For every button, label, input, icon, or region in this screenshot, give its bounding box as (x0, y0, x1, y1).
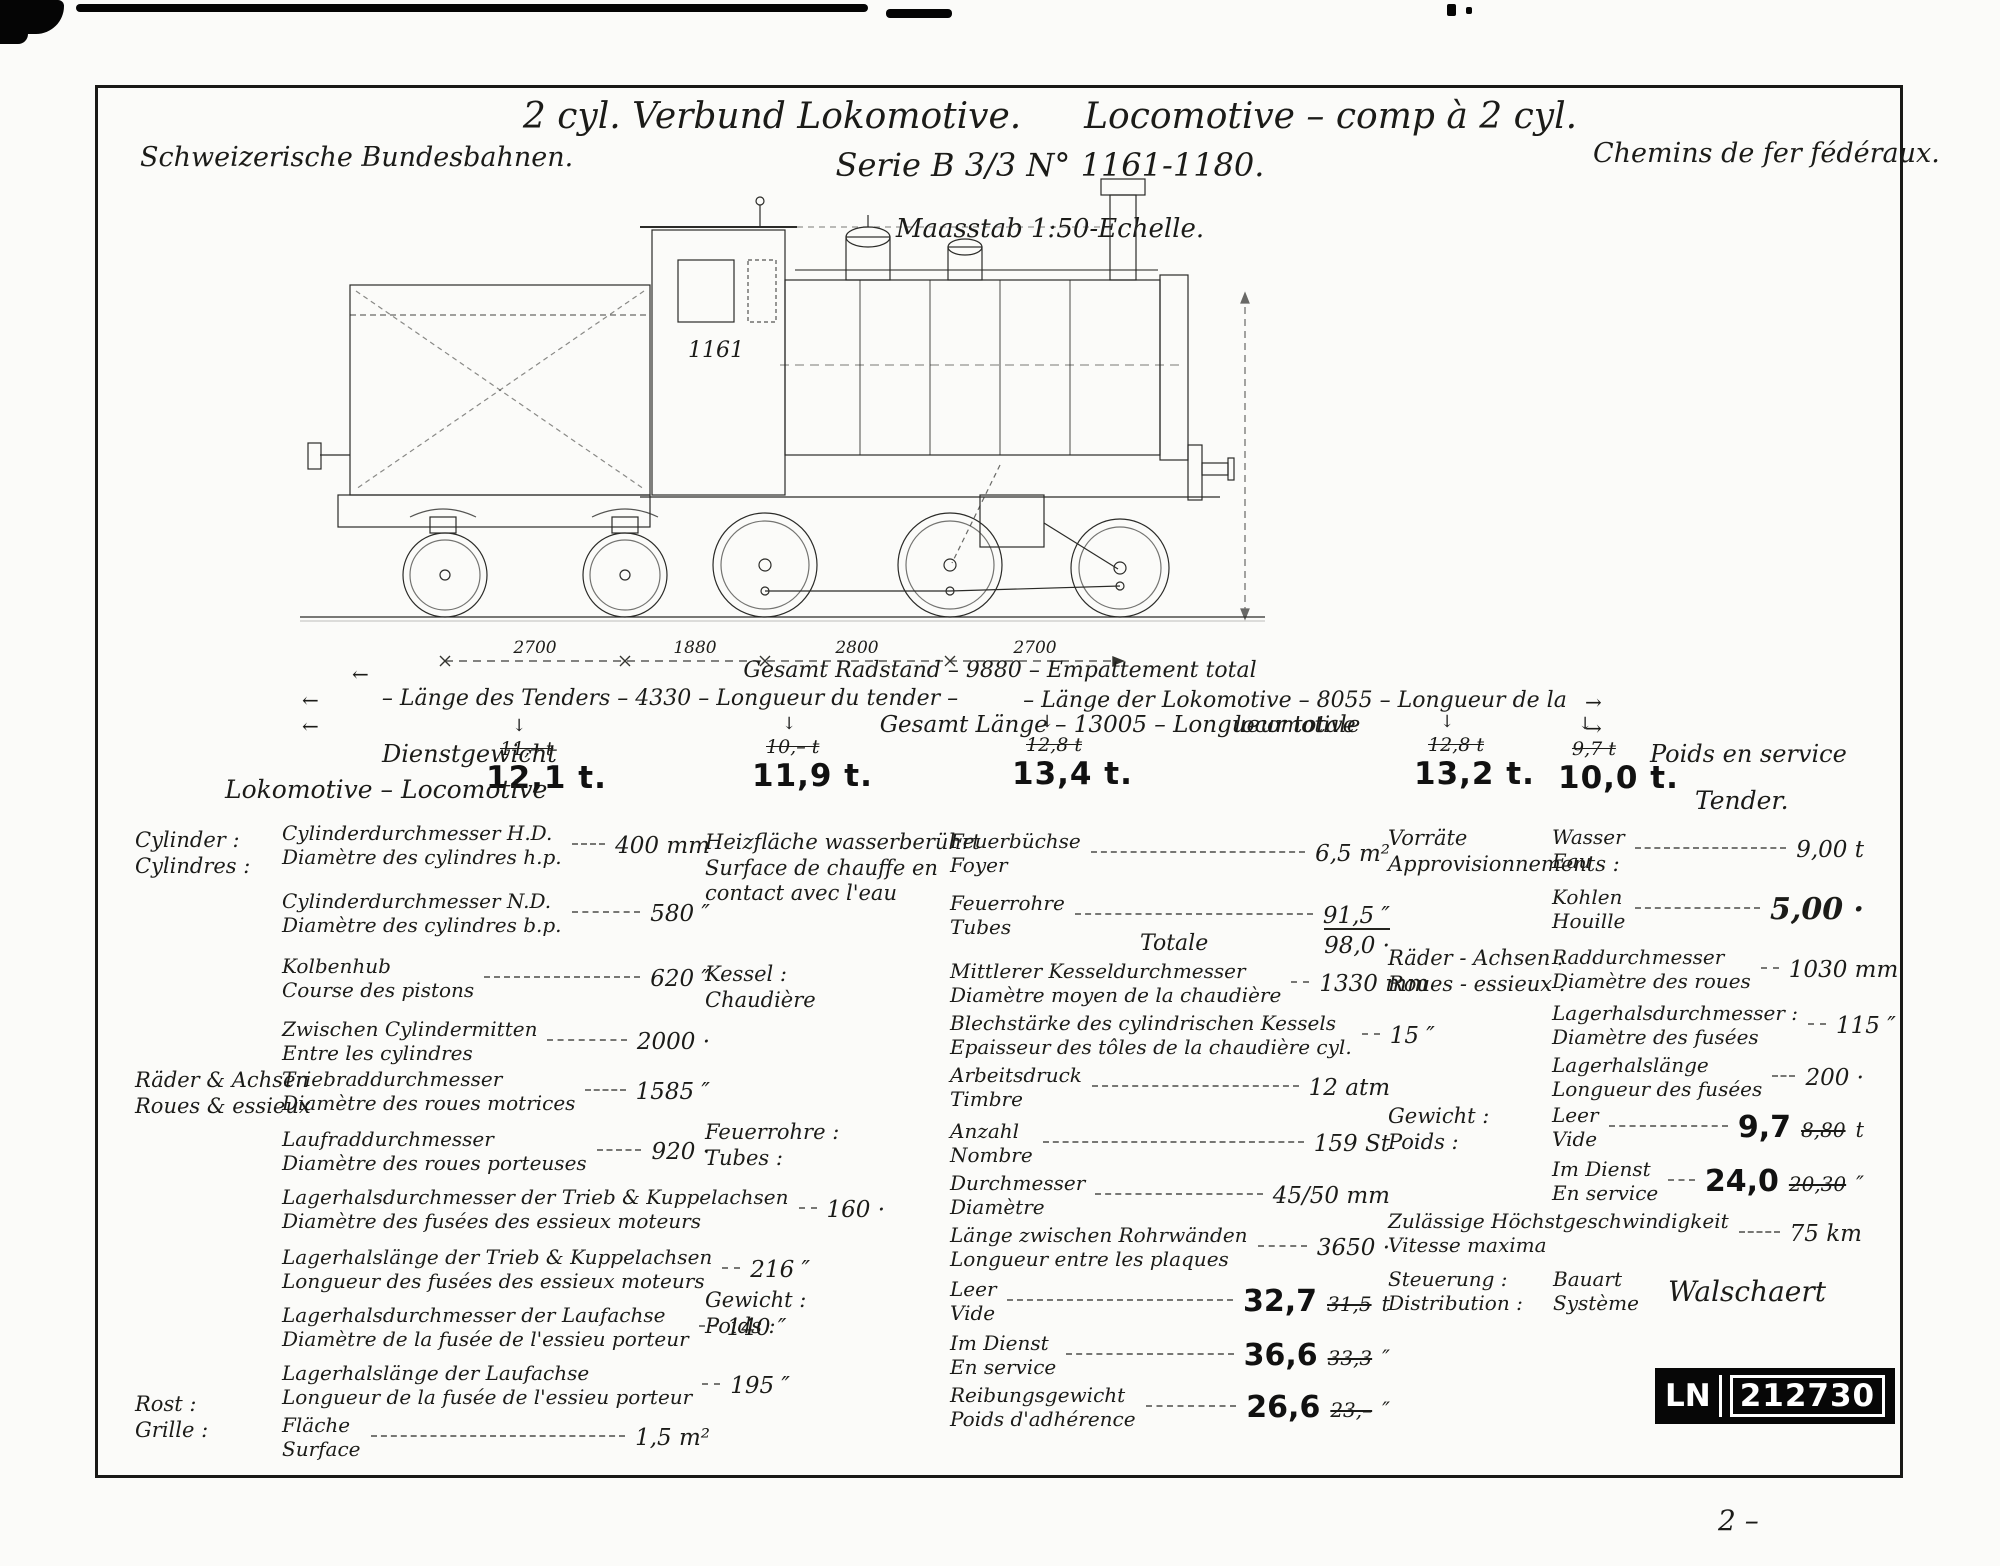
dash-leader (1258, 1243, 1307, 1247)
spec-value: 580 ″ (650, 901, 710, 927)
spec-value: 12 atm (1309, 1075, 1390, 1101)
spec-value: 195 ″ (730, 1373, 790, 1399)
old-value: 33,3 (1328, 1346, 1373, 1370)
spec-value: 5,00 · (1770, 892, 1864, 927)
total-wheelbase-dimension: Gesamt Radstand – 9880 – Empattement tot… (620, 658, 1380, 683)
spec-row-tender-wheel-dia: RaddurchmesserDiamètre des roues 1030 mm (1552, 946, 1864, 993)
dash-leader (1739, 1229, 1780, 1233)
total-label: Totale (1140, 931, 1208, 957)
scan-artifact (76, 4, 868, 12)
spec-value: 3650 · (1317, 1235, 1390, 1261)
axle-load-2: 10,– t 11,9 t. (752, 736, 873, 794)
dash-leader (1609, 1123, 1728, 1127)
spec-row-coal: KohlenHouille 5,00 · (1552, 886, 1864, 933)
spec-row-piston-stroke: KolbenhubCourse des pistons 620 ″ (282, 955, 710, 1002)
dim-arrow-left: ← (352, 662, 369, 686)
value-unit: t (1856, 1118, 1864, 1142)
spec-row-max-speed: Zulässige HöchstgeschwindigkeitVitesse m… (1388, 1210, 1862, 1257)
axle-load-arrow: ↓ (782, 714, 796, 734)
dash-leader (1091, 849, 1305, 853)
valve-gear-type: Walschaert (1668, 1275, 1826, 1308)
dim-arrow-left: ← (302, 714, 319, 738)
spec-value: 91,5 ″ (1323, 903, 1390, 929)
boiler (780, 227, 1188, 460)
group-label-heating-surface: Heizfläche wasserberührt Surface de chau… (705, 830, 980, 907)
value-unit: ″ (1382, 1346, 1390, 1370)
page-number: 2 – (1718, 1504, 1759, 1537)
axle-load-3: 12,8 t 13,4 t. (1012, 734, 1133, 792)
spec-row-tender-journal-length: LagerhalslängeLongueur des fusées 200 · (1552, 1054, 1864, 1101)
span-dim: 2700 (1012, 640, 1056, 658)
dash-leader (484, 974, 640, 978)
spec-value: 45/50 mm (1273, 1183, 1390, 1209)
spec-value: 6,5 m² (1315, 841, 1390, 867)
spec-row-boiler-diameter: Mittlerer KesseldurchmesserDiamètre moye… (950, 960, 1390, 1007)
span-dim: 2700 (512, 640, 556, 658)
dash-leader (585, 1087, 625, 1091)
dash-leader (1772, 1073, 1795, 1077)
old-axle-load: 10,– t (766, 736, 873, 758)
spec-row-tube-length: Länge zwischen RohrwändenLongueur entre … (950, 1224, 1390, 1271)
front-buffer (1188, 445, 1234, 500)
spec-value: 620 ″ (650, 966, 710, 992)
span-dim: 1880 (673, 640, 716, 658)
service-weight-label-french: Poids en service (1650, 740, 1847, 768)
dash-leader (1095, 1191, 1262, 1195)
dash-leader (799, 1205, 817, 1209)
tender-row-label: Tender. (1695, 786, 1789, 815)
spec-row-cylinder-centres: Zwischen CylindermittenEntre les cylindr… (282, 1018, 710, 1065)
scan-artifact (1447, 4, 1456, 16)
axle-load-arrow: ↓ (1440, 712, 1454, 732)
axle-load-4: 12,8 t 13,2 t. (1414, 734, 1535, 792)
corrected-value: 24,0 (1705, 1164, 1779, 1199)
spec-row-valve-gear: Steuerung :Distribution : BauartSystème … (1388, 1268, 1888, 1315)
title: 2 cyl. Verbund Lokomotive. Locomotive – … (500, 96, 1600, 137)
stamp-number: 212730 (1740, 1378, 1875, 1414)
scan-artifact (0, 28, 28, 44)
dash-leader (572, 841, 606, 845)
value-unit: ″ (1382, 1398, 1390, 1422)
corrected-value: 36,6 (1244, 1338, 1318, 1373)
spec-row-total-surface: Totale 98,0 · (1140, 928, 1390, 959)
spec-value: 1030 mm (1789, 957, 1898, 983)
spec-row-tender-journal-dia: Lagerhalsdurchmesser :Diamètre des fusée… (1552, 1002, 1864, 1049)
stamp-prefix: LN (1665, 1378, 1711, 1414)
span-dim: 2800 (834, 640, 878, 658)
dash-leader (1761, 965, 1779, 969)
spec-row-loco-weight-service: Im DienstEn service 36,6 33,3 ″ (950, 1332, 1390, 1379)
group-label-cylinders: Cylinder : Cylindres : (135, 828, 250, 879)
spec-value: 9,00 t (1796, 837, 1864, 863)
spec-row-journal-length-coupled: Lagerhalslänge der Trieb & KuppelachsenL… (282, 1246, 710, 1293)
spec-row-tube-count: AnzahlNombre 159 St (950, 1120, 1390, 1167)
dash-leader (1291, 979, 1309, 983)
spec-value: 400 mm (615, 833, 710, 859)
group-label-fire-tubes: Feuerrohre : Tubes : (705, 1120, 839, 1171)
railway-name-french: Chemins de fer fédéraux. (1593, 138, 1940, 169)
spec-row-journal-length-carrying: Lagerhalslänge der LaufachseLongueur de … (282, 1362, 710, 1409)
rail-line (300, 617, 1265, 621)
spec-value: 15 ″ (1390, 1023, 1435, 1049)
spec-value: 160 · (827, 1197, 886, 1223)
axle-load-arrow: ↓ (1578, 714, 1592, 734)
group-label-tender-weight: Gewicht : Poids : (1388, 1104, 1489, 1155)
corrected-value: 9,7 (1738, 1110, 1791, 1145)
dash-leader (702, 1381, 720, 1385)
group-label-weight: Gewicht : Poids : (705, 1288, 806, 1339)
dash-leader (1043, 1139, 1304, 1143)
spec-row-tube-diameter: DurchmesserDiamètre 45/50 mm (950, 1172, 1390, 1219)
locomotive-drawing: 1161 (280, 165, 1280, 635)
spec-row-journal-dia-carrying: Lagerhalsdurchmesser der LaufachseDiamèt… (282, 1304, 710, 1351)
group-label-boiler: Kessel : Chaudière (705, 962, 816, 1013)
spec-value: 200 · (1805, 1065, 1864, 1091)
title-german: 2 cyl. Verbund Lokomotive. (523, 96, 1021, 137)
spec-value: 2000 · (637, 1029, 710, 1055)
dash-leader (1808, 1021, 1826, 1025)
spec-row-cyl-hp: Cylinderdurchmesser H.D.Diamètre des cyl… (282, 822, 710, 869)
spec-value: 920 · (651, 1139, 710, 1165)
dash-leader (1146, 1403, 1237, 1407)
spec-value-sum: 98,0 · (1324, 928, 1390, 959)
stamp-divider (1719, 1375, 1722, 1417)
spec-row-water: WasserEau 9,00 t (1552, 826, 1864, 873)
dash-leader (1635, 845, 1787, 849)
spec-row-journal-dia-coupled: Lagerhalsdurchmesser der Trieb & Kuppela… (282, 1186, 710, 1233)
title-french: Locomotive – comp à 2 cyl. (1084, 96, 1577, 137)
dash-leader (1092, 1083, 1299, 1087)
corrected-value: 26,6 (1246, 1390, 1320, 1425)
value-unit: ″ (1856, 1172, 1864, 1196)
old-axle-load: 12,8 t (1428, 734, 1535, 756)
spec-row-carrying-wheel-dia: LaufraddurchmesserDiamètre des roues por… (282, 1128, 710, 1175)
axle-load-arrow: ↓ (512, 716, 526, 736)
spec-value: 1585 ″ (636, 1079, 710, 1105)
corrected-axle-load: 11,9 t. (752, 758, 873, 794)
dash-leader (572, 909, 641, 913)
spec-row-tender-weight-service: Im DienstEn service 24,0 20,30 ″ (1552, 1158, 1864, 1205)
spec-row-working-pressure: ArbeitsdruckTimbre 12 atm (950, 1064, 1390, 1111)
height-dimension-line (1241, 293, 1249, 619)
dim-arrow-right: → (1585, 690, 1602, 714)
scanned-locomotive-drawing-sheet: { "header": { "org_left": "Schweizerisch… (0, 0, 2000, 1566)
dash-leader (597, 1147, 642, 1151)
corrected-value: 32,7 (1243, 1284, 1317, 1319)
scan-artifact (1466, 7, 1472, 14)
loco-number-on-cab: 1161 (688, 338, 744, 363)
spec-value: 216 ″ (750, 1257, 810, 1283)
old-axle-load: 12,8 t (1026, 734, 1133, 756)
group-label-tender-wheels: Räder - Achsen : Roues - essieux . (1388, 946, 1565, 997)
tender-wheels (403, 533, 667, 617)
old-value: 20,30 (1789, 1172, 1846, 1196)
scan-artifact (886, 9, 952, 18)
dash-leader (547, 1037, 626, 1041)
chimney (1101, 179, 1145, 280)
spec-row-grate-area: FlächeSurface 1,5 m² (282, 1414, 710, 1461)
axle-load-arrow: ↓ (1040, 712, 1054, 732)
old-value: 31,5 (1327, 1292, 1372, 1316)
old-value: 8,80 (1801, 1118, 1846, 1142)
old-axle-load: 11,– t (500, 738, 607, 760)
spec-value: 75 km (1790, 1221, 1862, 1247)
dash-leader (1075, 911, 1313, 915)
spec-row-adhesion-weight: ReibungsgewichtPoids d'adhérence 26,6 23… (950, 1384, 1390, 1431)
dash-leader (1007, 1297, 1233, 1301)
corrected-axle-load: 13,2 t. (1414, 756, 1535, 792)
spec-row-plate-thickness: Blechstärke des cylindrischen KesselsEpa… (950, 1012, 1390, 1059)
spec-row-firebox-surface: FeuerbüchseFoyer 6,5 m² (950, 830, 1390, 877)
dash-leader (1635, 905, 1760, 909)
old-value: 23,– (1330, 1398, 1372, 1422)
inventory-stamp: LN 212730 (1655, 1368, 1895, 1424)
corrected-axle-load: 13,4 t. (1012, 756, 1133, 792)
dim-arrow-left: ← (302, 688, 319, 712)
dash-leader (1668, 1177, 1695, 1181)
group-label-grate: Rost : Grille : (135, 1392, 208, 1443)
locomotive-row-label: Lokomotive – Locomotive (225, 775, 547, 804)
dash-leader (1066, 1351, 1233, 1355)
dash-leader (722, 1265, 740, 1269)
dash-leader (371, 1433, 626, 1437)
spec-row-cyl-lp: Cylinderdurchmesser N.D.Diamètre des cyl… (282, 890, 710, 937)
spec-value: 1,5 m² (635, 1425, 710, 1451)
dash-leader (1362, 1031, 1380, 1035)
spec-row-driving-wheel-dia: TriebraddurchmesserDiamètre des roues mo… (282, 1068, 710, 1115)
spec-value: 159 St (1314, 1131, 1390, 1157)
spec-value: 115 ″ (1836, 1013, 1896, 1039)
tender-length-dimension: – Länge des Tenders – 4330 – Longueur du… (330, 686, 1010, 711)
driving-wheels (713, 513, 1169, 617)
spec-row-loco-weight-empty: LeerVide 32,7 31,5 t (950, 1278, 1390, 1325)
tender (308, 285, 658, 533)
spec-row-tender-weight-empty: LeerVide 9,7 8,80 t (1552, 1104, 1864, 1151)
